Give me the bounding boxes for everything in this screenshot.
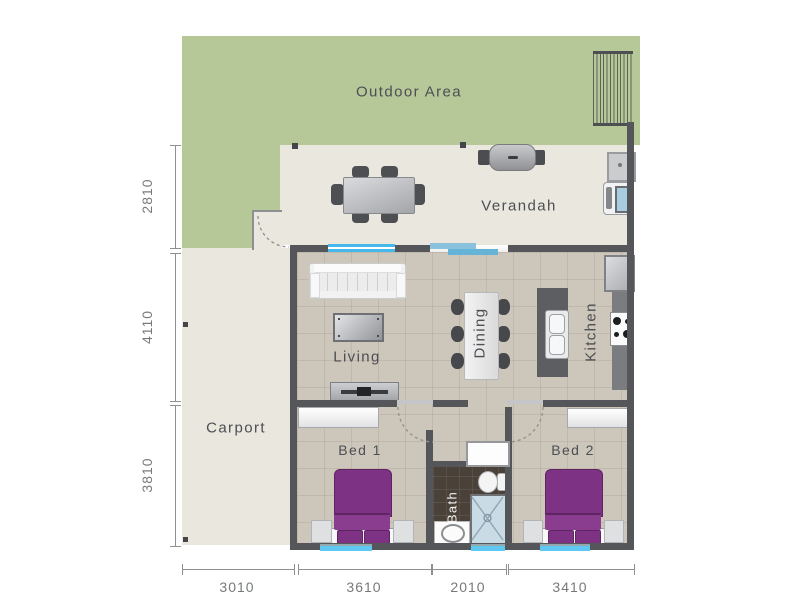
dining-chair	[451, 353, 464, 369]
window-bed2	[540, 544, 590, 551]
wall-hall-right	[543, 400, 634, 407]
wall-bath-bed2	[505, 407, 512, 543]
basin	[441, 524, 465, 543]
bed1-label: Bed 1	[338, 442, 382, 458]
toilet-bowl	[478, 471, 498, 493]
sofa-back	[314, 264, 401, 273]
sofa-armrest	[396, 273, 406, 298]
dimension-line-3410	[508, 564, 635, 575]
dimension-value: 3410	[552, 579, 587, 595]
door-leaf-bed1	[397, 400, 433, 404]
wall-right	[627, 122, 634, 550]
burner	[613, 317, 621, 325]
table-bolt	[338, 335, 340, 337]
bedside-table	[604, 520, 624, 543]
carport-post	[183, 322, 188, 327]
pillow	[548, 530, 574, 544]
dimension-line-3810	[170, 405, 181, 547]
bbq	[489, 144, 536, 171]
dimension-line-3610	[298, 564, 432, 575]
window-living	[328, 244, 395, 252]
wardrobe	[567, 408, 629, 428]
dimension-line-2810	[170, 145, 181, 249]
kitchen-sink	[545, 310, 569, 359]
dimension-value: 3610	[346, 579, 381, 595]
table-bolt	[338, 318, 340, 320]
bed2-label: Bed 2	[551, 442, 595, 458]
dimension-value: 4110	[139, 310, 155, 344]
kitchen-label: Kitchen	[583, 302, 600, 362]
verandah-label: Verandah	[481, 198, 556, 215]
sofa-cushions	[318, 273, 397, 291]
dining-chair	[451, 326, 464, 342]
verandah-post	[460, 142, 466, 148]
vanity-basin	[434, 521, 470, 545]
bed-duvet-fold	[545, 513, 601, 530]
table-bolt	[377, 318, 379, 320]
pillow	[575, 530, 601, 544]
table-bolt	[377, 335, 379, 337]
outdoor-area-label: Outdoor Area	[356, 84, 462, 101]
bedside-table	[311, 520, 332, 543]
pillow	[364, 530, 390, 544]
carport-label: Carport	[206, 420, 266, 437]
wall-top-right	[508, 245, 634, 252]
wall-bath-top	[426, 461, 466, 467]
dimension-value: 3810	[139, 457, 155, 492]
bath-cabinet	[466, 441, 510, 467]
wall-hall-mid	[433, 400, 468, 407]
sofa-armrest	[310, 273, 320, 298]
dimension-value: 2810	[139, 178, 155, 213]
sink-bowl	[549, 314, 565, 334]
wall-left	[290, 245, 297, 550]
window-bed1	[320, 544, 372, 551]
living-label: Living	[333, 349, 381, 366]
carport-post	[183, 537, 188, 542]
window-bath	[471, 544, 505, 551]
dimension-line-3010	[182, 564, 295, 575]
bed-duvet	[545, 469, 603, 517]
dining-label: Dining	[472, 308, 489, 359]
sliding-door-panel	[448, 249, 498, 255]
washer-side-panel	[606, 187, 612, 209]
dimension-line-4110	[170, 253, 181, 402]
shower	[470, 494, 507, 545]
tv-screen	[357, 387, 371, 396]
bedside-table	[523, 520, 543, 543]
deck-stairs	[593, 51, 633, 126]
bedside-table	[393, 520, 414, 543]
dimension-value: 3010	[219, 579, 254, 595]
outdoor-table	[343, 177, 415, 214]
sofa	[309, 263, 406, 299]
bath-label: Bath	[445, 491, 460, 523]
carport-floor	[182, 248, 297, 545]
sink-tap	[618, 163, 622, 167]
wall-hall-left	[290, 400, 397, 407]
wall-top-mid	[395, 245, 430, 252]
tv-unit	[330, 382, 399, 402]
bed-duvet-fold	[334, 513, 390, 530]
pillow	[337, 530, 363, 544]
sink-bowl	[549, 335, 565, 355]
wardrobe	[298, 407, 379, 428]
floor-plan: Outdoor Area Verandah Living Dining Kitc…	[0, 0, 800, 600]
dimension-value: 2010	[450, 579, 485, 595]
burner	[614, 332, 619, 337]
dimension-line-2010	[432, 564, 507, 575]
door-leaf-bed2	[507, 400, 543, 404]
bed-duvet	[334, 469, 392, 517]
verandah-post	[292, 143, 298, 149]
entry-step-notch	[252, 210, 282, 250]
dining-chair	[451, 299, 464, 315]
bbq-lid-handle	[508, 156, 518, 159]
coffee-table	[333, 313, 384, 342]
wall-bed1-bath	[426, 430, 433, 543]
